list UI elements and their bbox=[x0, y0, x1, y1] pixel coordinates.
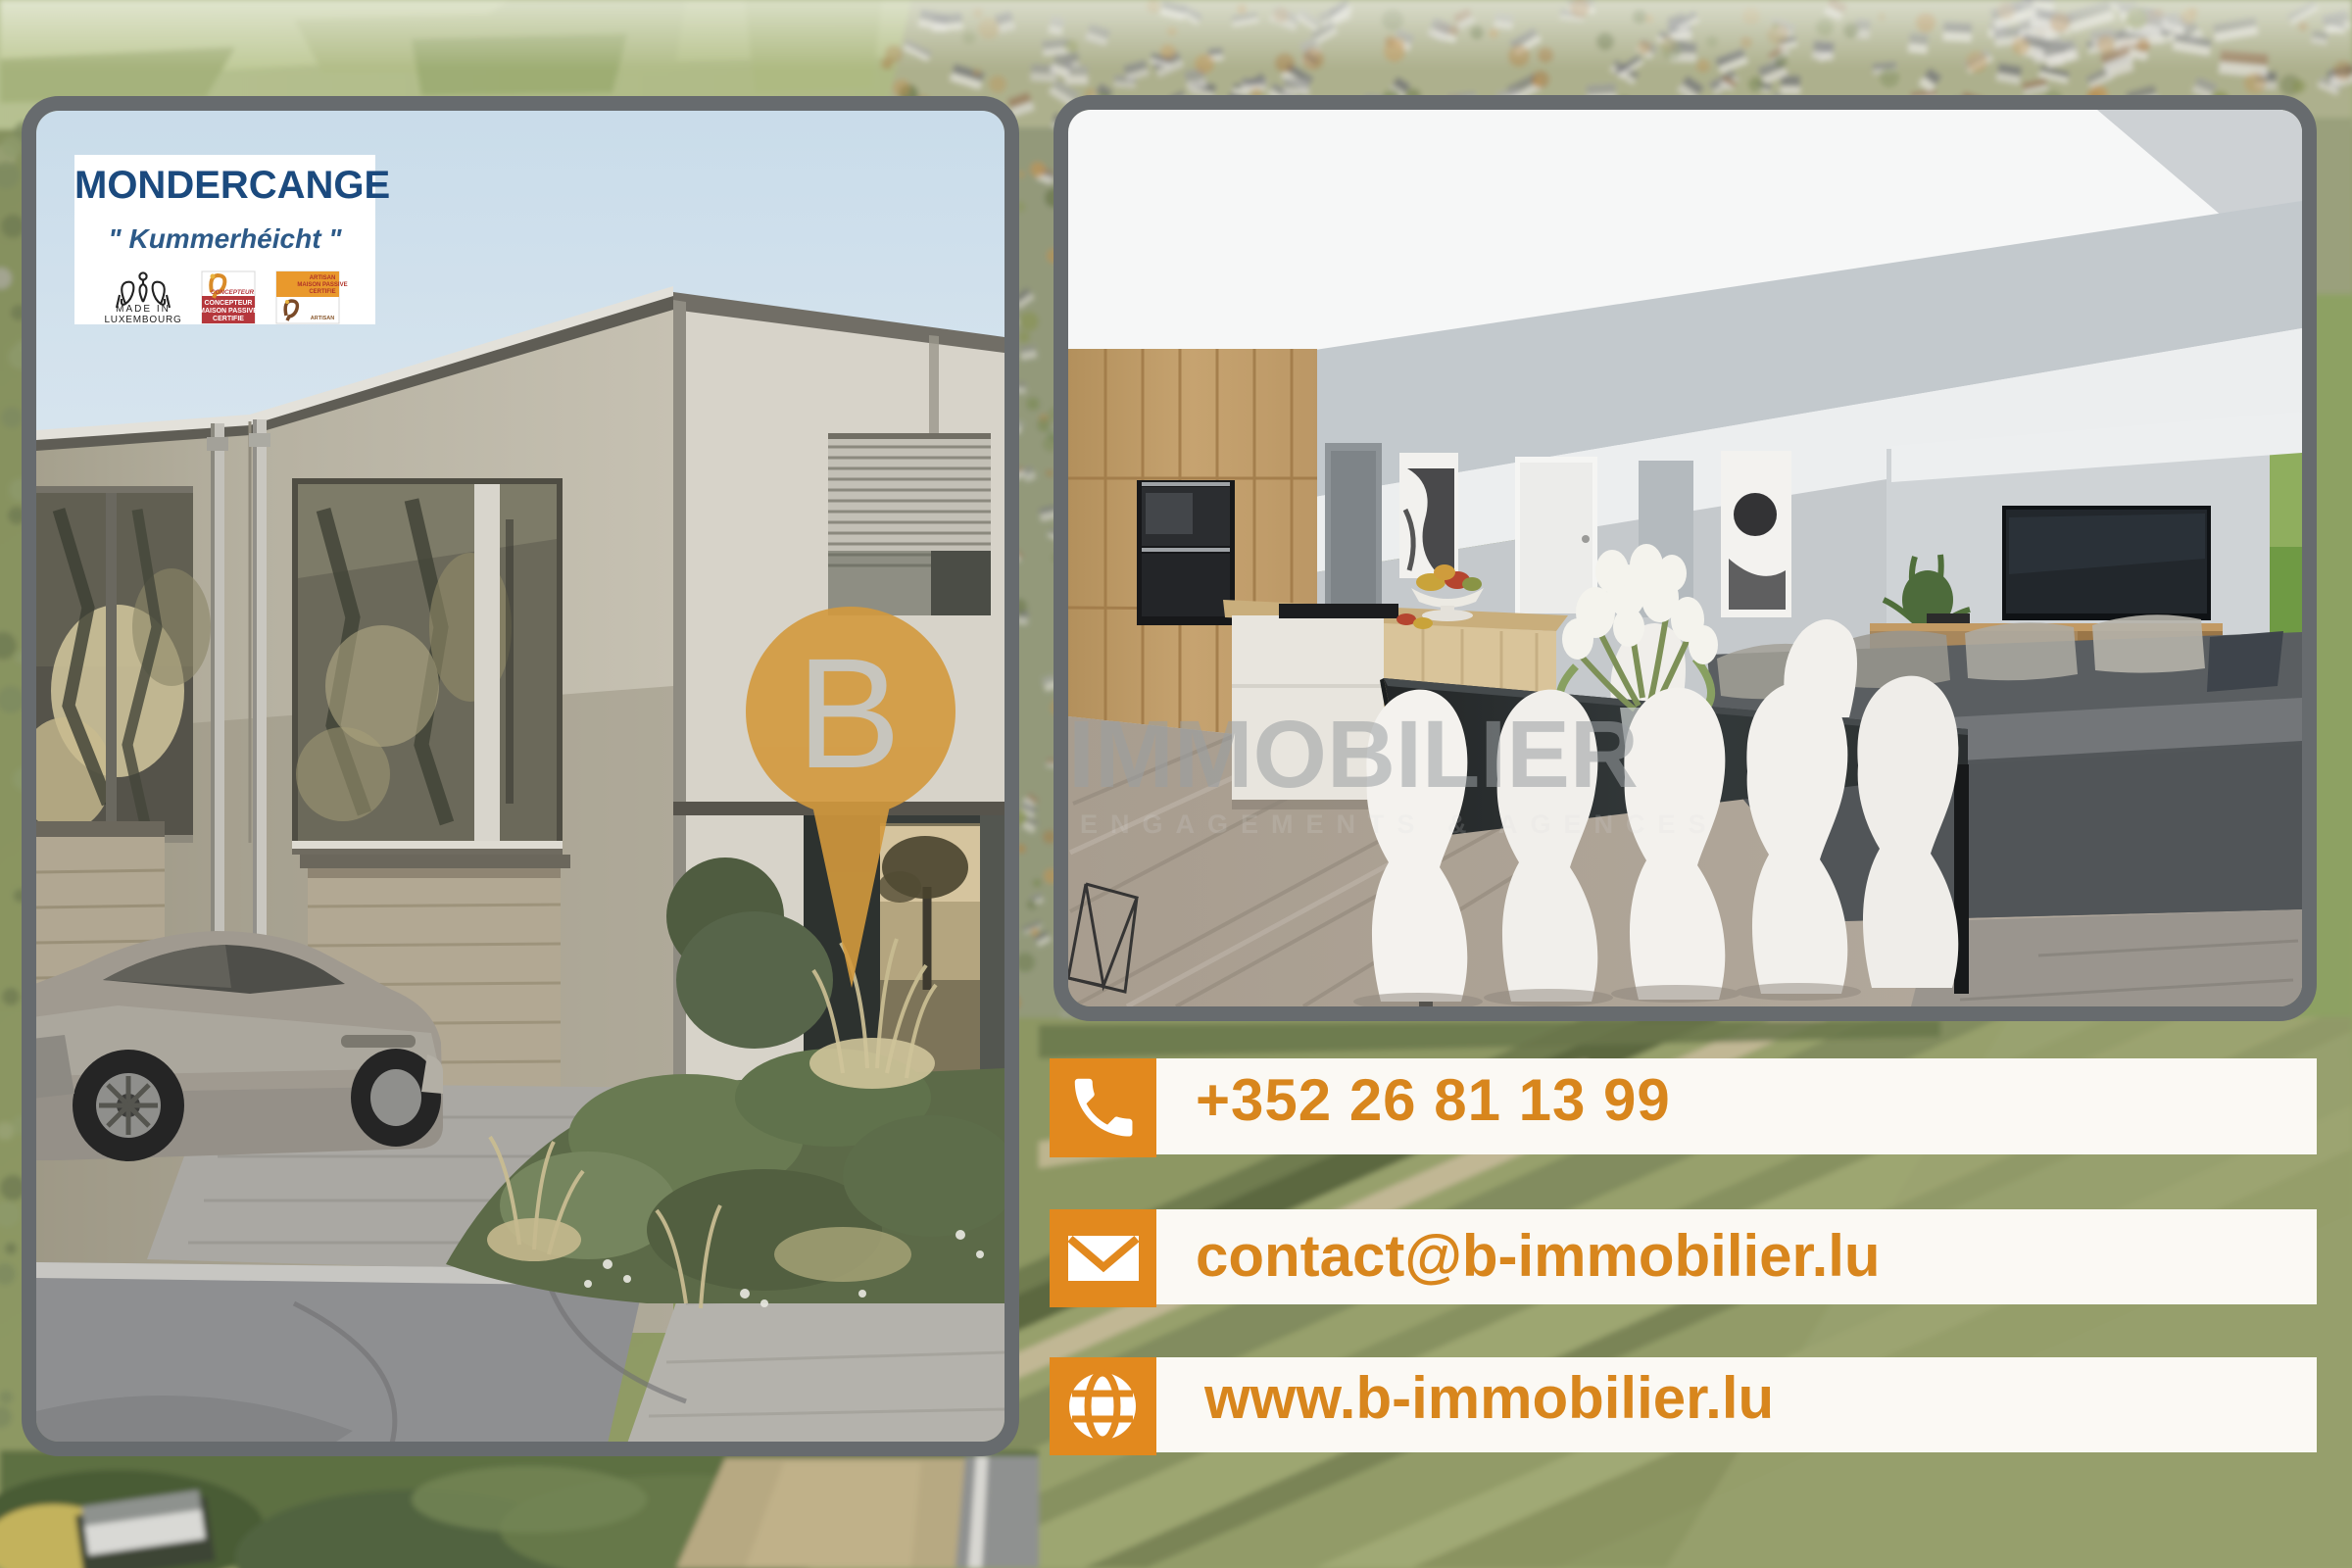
svg-text:MAISON PASSIVE: MAISON PASSIVE bbox=[199, 308, 258, 315]
svg-text:CERTIFIE: CERTIFIE bbox=[213, 316, 244, 322]
svg-text:B: B bbox=[797, 625, 902, 801]
svg-text:LUXEMBOURG: LUXEMBOURG bbox=[104, 315, 181, 324]
svg-text:ARTISAN: ARTISAN bbox=[310, 275, 336, 281]
svg-text:MADE IN: MADE IN bbox=[116, 304, 171, 315]
svg-text:MAISON PASSIVE: MAISON PASSIVE bbox=[297, 282, 347, 288]
svg-text:CERTIFIE: CERTIFIE bbox=[309, 289, 335, 295]
svg-text:CONCEPTEUR: CONCEPTEUR bbox=[204, 300, 252, 307]
svg-text:ARTISAN: ARTISAN bbox=[311, 316, 334, 321]
svg-text:CONCEPTEUR: CONCEPTEUR bbox=[211, 289, 255, 296]
